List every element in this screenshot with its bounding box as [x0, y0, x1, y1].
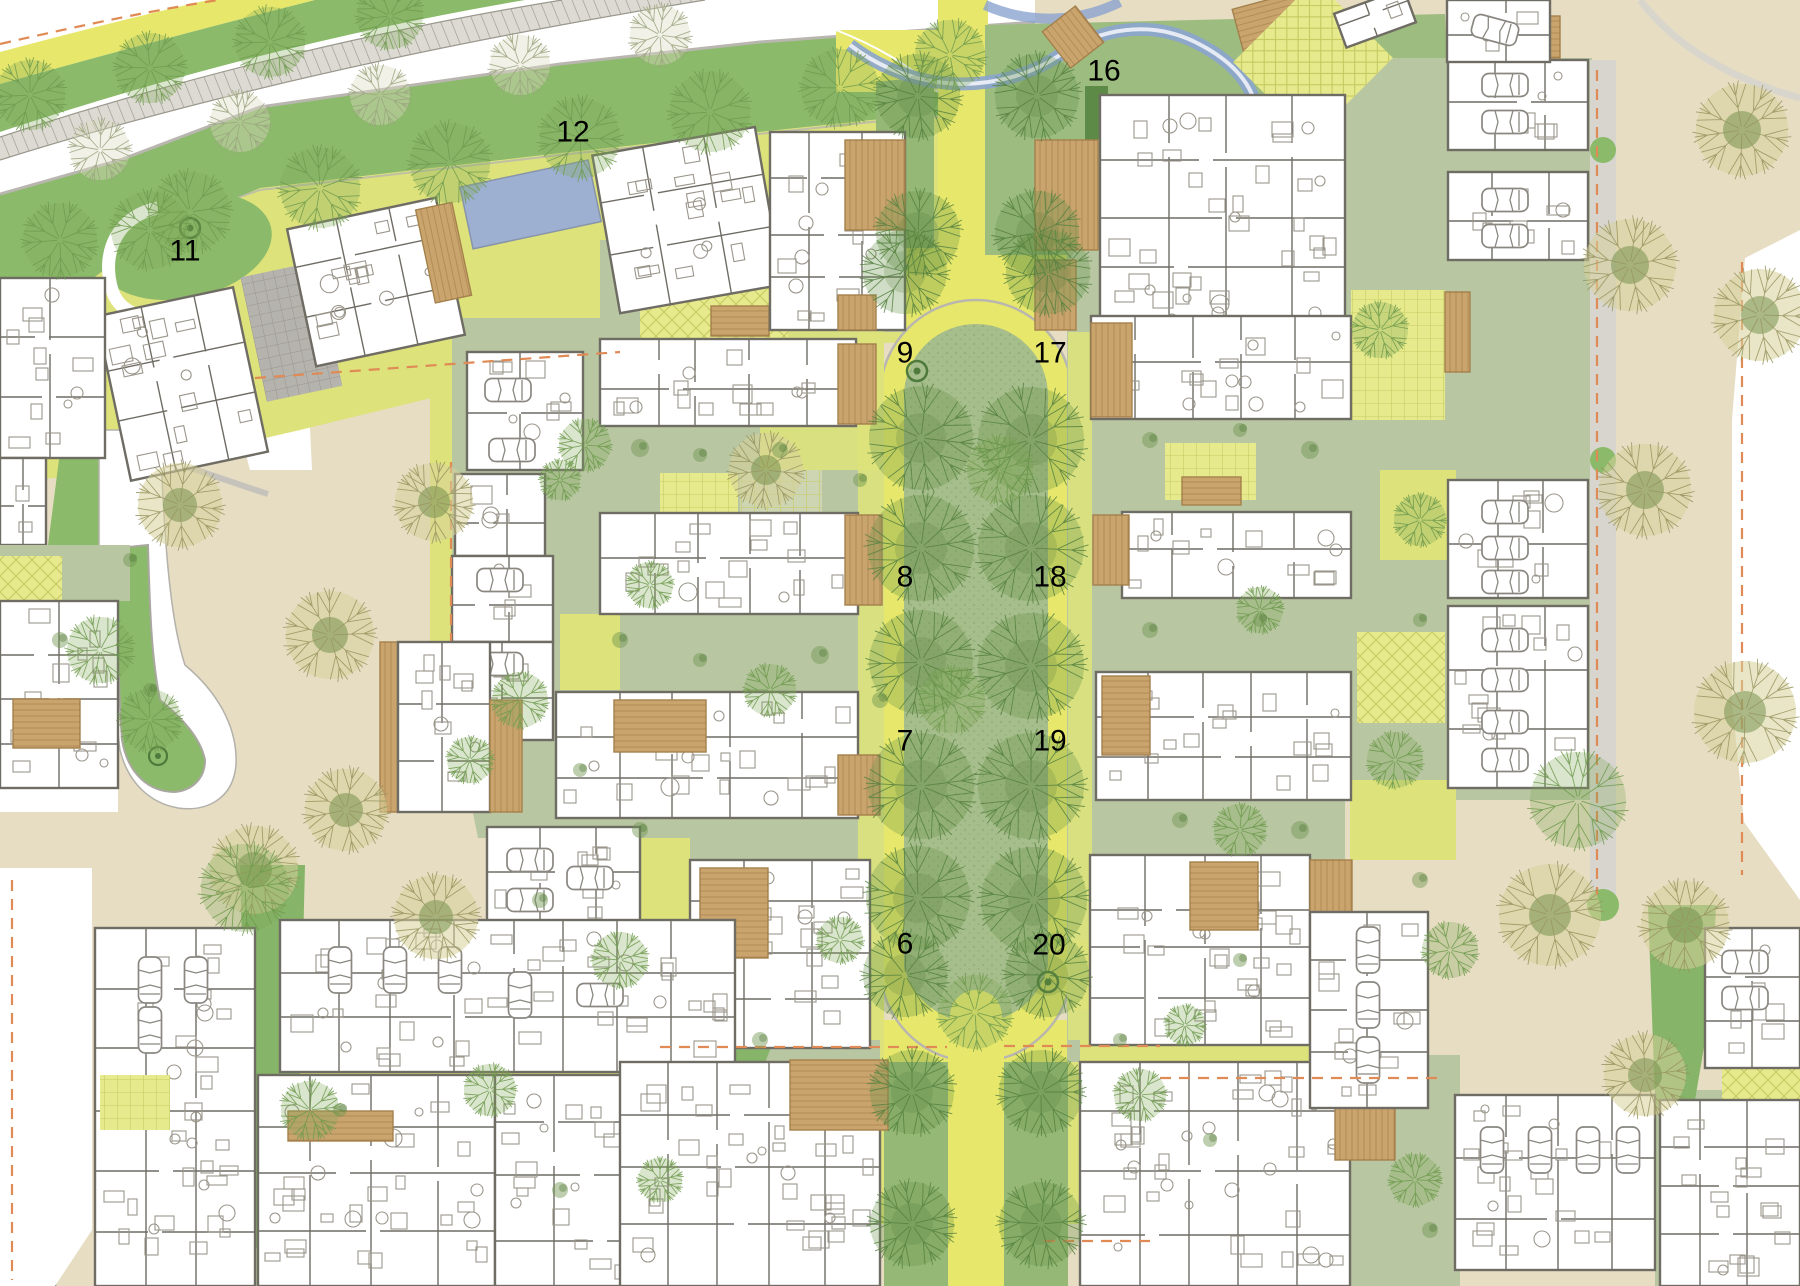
svg-text:11: 11 [169, 235, 200, 268]
svg-text:16: 16 [1087, 55, 1120, 88]
svg-text:17: 17 [1033, 337, 1066, 370]
svg-text:12: 12 [556, 116, 589, 149]
svg-text:8: 8 [897, 561, 914, 594]
svg-text:6: 6 [897, 928, 914, 961]
svg-text:20: 20 [1032, 929, 1065, 962]
svg-text:9: 9 [897, 337, 914, 370]
svg-text:18: 18 [1033, 561, 1066, 594]
svg-text:19: 19 [1033, 725, 1066, 758]
svg-text:7: 7 [897, 725, 914, 758]
